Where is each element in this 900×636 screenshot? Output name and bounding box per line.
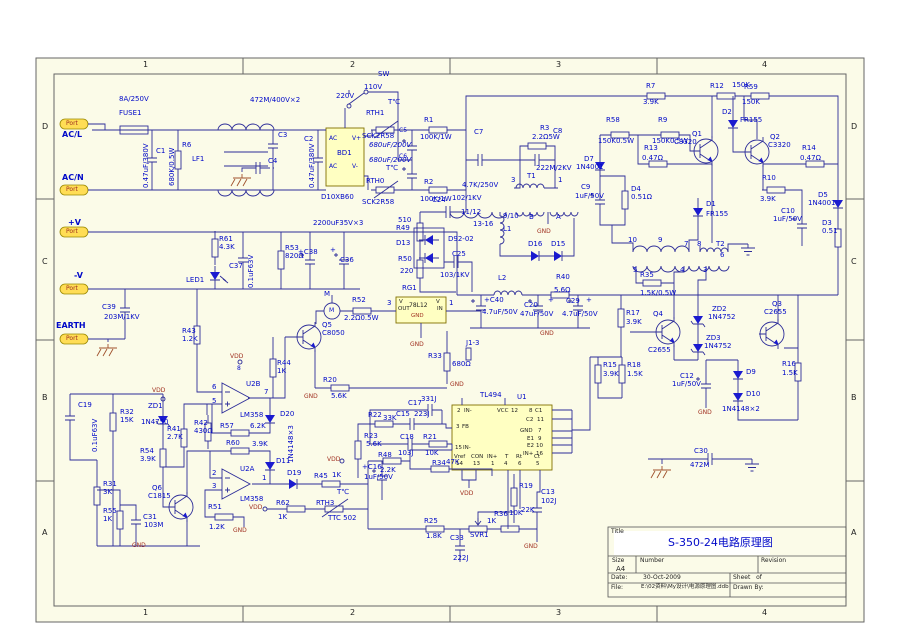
titleblock-sheet-label: Sheet of: [733, 575, 762, 581]
regulator-78l12-body: [396, 297, 446, 323]
titleblock-date-label: Date:: [611, 575, 627, 581]
titleblock-drawn-label: Drawn By:: [733, 585, 764, 591]
titleblock-number-label: Number: [640, 558, 664, 564]
bridge-rectifier-bd1-body: [326, 128, 364, 186]
sheet-title: S-350-24电路原理图: [668, 537, 773, 548]
titleblock-date-value: 30-Oct-2009: [643, 575, 681, 581]
titleblock-size-value: A4: [616, 566, 625, 573]
ic-tl494-body: [452, 405, 552, 470]
schematic-page: 12341234DCBADCBAPortPortPortPortPortAC/L…: [0, 0, 900, 636]
titleblock-title-label: Title: [611, 529, 624, 535]
titleblock-size-label: Size: [612, 558, 624, 564]
port-earth: [60, 334, 88, 344]
port-ac-n: [60, 185, 88, 195]
port-plus-v: [60, 227, 88, 237]
titleblock-file-value: E:\02资料\My设计\电源原理图.ddb: [641, 585, 729, 591]
titleblock-file-label: File:: [611, 585, 623, 591]
port-ac-l: [60, 119, 88, 129]
port-minus-v: [60, 284, 88, 294]
titleblock-revision-label: Revision: [761, 558, 786, 564]
